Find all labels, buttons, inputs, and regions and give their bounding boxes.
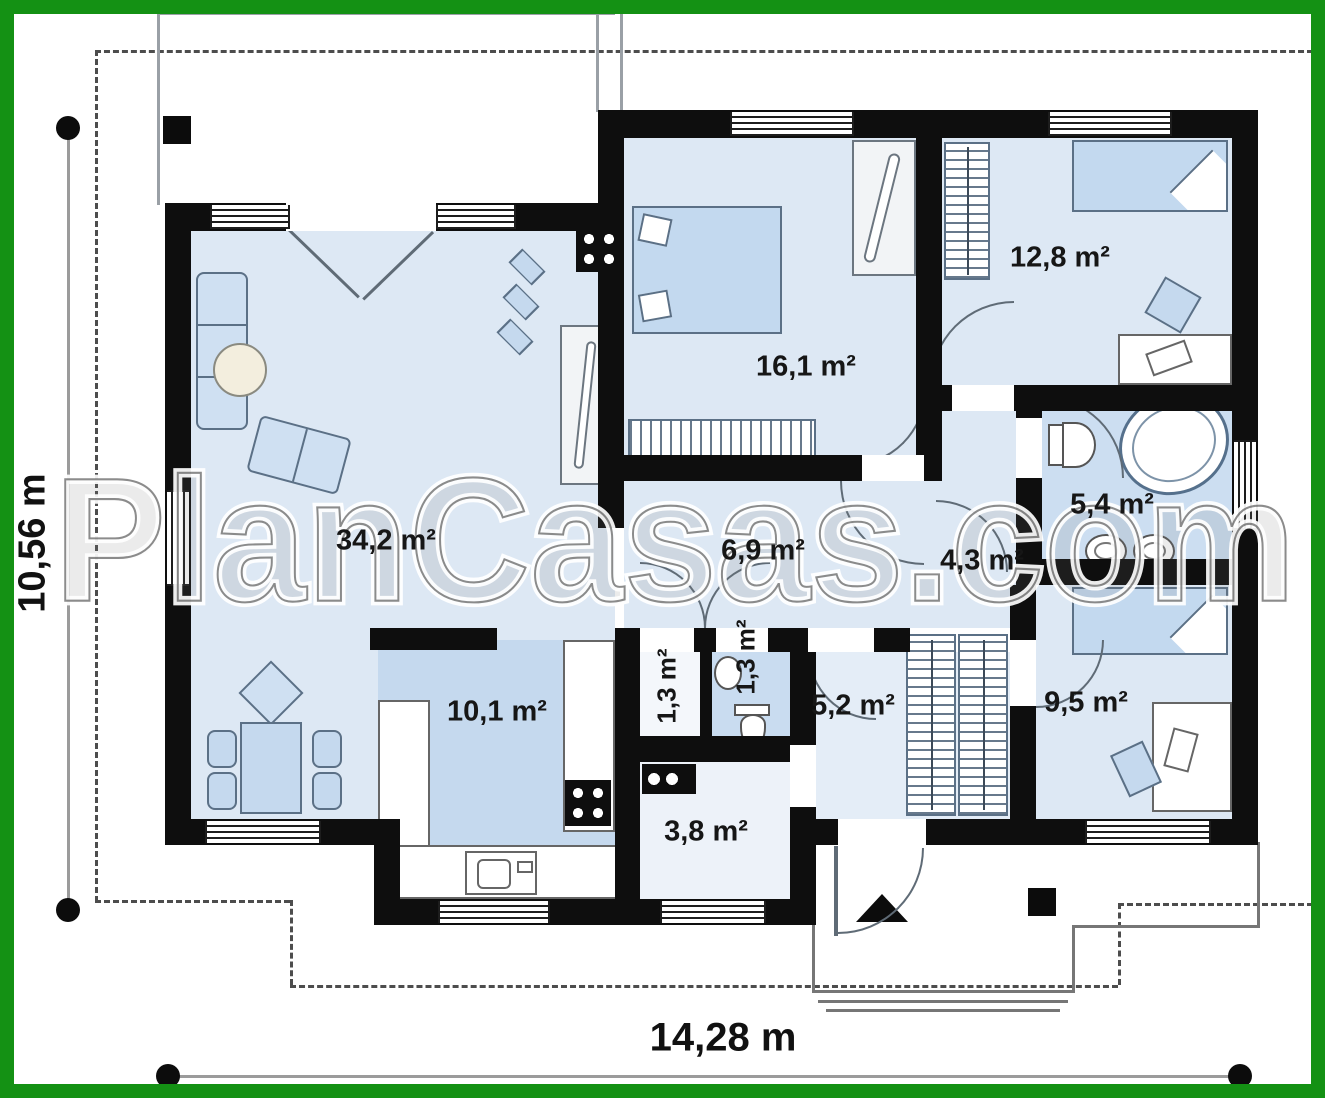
room-bedroom-small-area-label: 9,5 m² bbox=[1044, 687, 1128, 720]
window-bedroom-main bbox=[730, 112, 854, 136]
height-dimension-label: 10,56 m bbox=[12, 473, 55, 612]
window-kitchen bbox=[438, 901, 550, 923]
wall-bathroom-bottom bbox=[1016, 559, 1258, 585]
window-bedroom-top bbox=[1048, 112, 1172, 136]
porch-step-line1 bbox=[818, 1000, 1068, 1003]
dimension-line-horizontal bbox=[168, 1075, 1240, 1078]
wall-closets-bottom bbox=[624, 736, 790, 762]
gap-bathroom-door bbox=[1016, 418, 1042, 478]
roof-overhang-line-right bbox=[1311, 50, 1314, 903]
room-kitchen-area-label: 10,1 m² bbox=[447, 696, 547, 729]
kitchen-sink bbox=[465, 851, 537, 895]
porch-edge-bottom-low bbox=[812, 990, 1074, 993]
front-door-swing bbox=[838, 848, 924, 934]
dimension-dot-top bbox=[56, 116, 80, 140]
roof-overhang-line-bottom-left bbox=[95, 900, 290, 903]
roof-overhang-line-drop-right bbox=[1118, 903, 1121, 985]
dining-table bbox=[240, 722, 302, 814]
gap-front-door bbox=[838, 819, 926, 845]
roof-overhang-line-left bbox=[95, 50, 98, 902]
room-living-area-label: 34,2 m² bbox=[336, 525, 436, 558]
wall-kitchen-top bbox=[370, 628, 497, 650]
room-vestibule-area-label: 3,8 m² bbox=[664, 816, 748, 849]
bed-top bbox=[1072, 140, 1228, 212]
window-living-left bbox=[167, 490, 189, 586]
room-bedroom-top-area-label: 12,8 m² bbox=[1010, 242, 1110, 275]
wardrobe-bench bbox=[628, 419, 816, 459]
bed-main bbox=[632, 206, 782, 334]
terrace-edge-right-outer bbox=[596, 12, 599, 112]
window-terrace-right bbox=[436, 205, 516, 229]
gap-hall-entry-door bbox=[808, 628, 874, 652]
porch-step-line2 bbox=[826, 1009, 1060, 1012]
gap-vestibule-door bbox=[790, 745, 816, 807]
front-door-leaf bbox=[834, 846, 838, 936]
dimension-dot-left bbox=[156, 1064, 180, 1088]
width-dimension-label: 14,28 m bbox=[650, 1016, 797, 1061]
gap-bedroom-main-door bbox=[862, 455, 924, 481]
gap-bedroom-small-door bbox=[1010, 640, 1036, 706]
terrace-edge-right-inner bbox=[620, 12, 623, 112]
dimension-line-vertical bbox=[67, 128, 70, 910]
room-hall-entry-area-label: 5,2 m² bbox=[811, 690, 895, 723]
porch-edge-right bbox=[1257, 842, 1260, 928]
roof-overhang-line-bottom-right bbox=[1118, 903, 1313, 906]
wardrobe-bedroom-top bbox=[944, 142, 990, 280]
bedroom-main-closet bbox=[852, 140, 916, 276]
window-bedroom-small bbox=[1085, 821, 1211, 843]
window-terrace-left bbox=[210, 205, 290, 229]
dimension-dot-right bbox=[1228, 1064, 1252, 1088]
dining-chair bbox=[207, 772, 237, 810]
fireplace-icon bbox=[576, 226, 622, 272]
wardrobe-hall-left bbox=[906, 634, 956, 816]
room-corridor-area-label: 4,3 m² bbox=[940, 545, 1024, 578]
window-vestibule bbox=[660, 901, 766, 923]
roof-overhang-line-top bbox=[95, 50, 1313, 53]
wall-bedrooms-divider bbox=[916, 110, 942, 481]
window-dining bbox=[205, 821, 321, 843]
floor-plan: 10,56 m 14,28 m bbox=[0, 0, 1325, 1098]
dimension-dot-bottom bbox=[56, 898, 80, 922]
window-bathroom bbox=[1234, 440, 1256, 530]
terrace-post bbox=[163, 116, 191, 144]
gap-bedroom-top-door bbox=[952, 385, 1014, 411]
boiler-icon bbox=[642, 764, 696, 794]
desk-bedroom-small bbox=[1152, 702, 1232, 812]
dining-chair bbox=[312, 772, 342, 810]
porch-edge-step-right bbox=[1072, 925, 1075, 993]
terrace-edge-left bbox=[157, 12, 160, 205]
roof-overhang-line-bottom-center bbox=[290, 985, 1118, 988]
dining-chair bbox=[207, 730, 237, 768]
room-hall-area-label: 6,9 m² bbox=[721, 535, 805, 568]
wall-vestibule-right bbox=[790, 845, 816, 905]
porch-edge-bottom-high bbox=[1072, 925, 1260, 928]
wall-kitchen-right bbox=[615, 628, 640, 925]
roof-overhang-line-drop-left bbox=[290, 900, 293, 985]
room-bedroom-main-area-label: 16,1 m² bbox=[756, 351, 856, 384]
room-wc-area-label: 1,3 m² bbox=[731, 619, 762, 694]
wardrobe-hall-right bbox=[958, 634, 1008, 816]
gap-terrace-door bbox=[286, 203, 436, 231]
dining-chair bbox=[312, 730, 342, 768]
porch-post bbox=[1028, 888, 1056, 916]
room-bathroom-area-label: 5,4 m² bbox=[1070, 489, 1154, 522]
desk-bedroom-top bbox=[1118, 334, 1232, 385]
coffee-table bbox=[213, 343, 267, 397]
room-closet-area-label: 1,3 m² bbox=[652, 648, 683, 723]
terrace-edge-top bbox=[157, 12, 615, 15]
stove-icon bbox=[565, 780, 611, 826]
